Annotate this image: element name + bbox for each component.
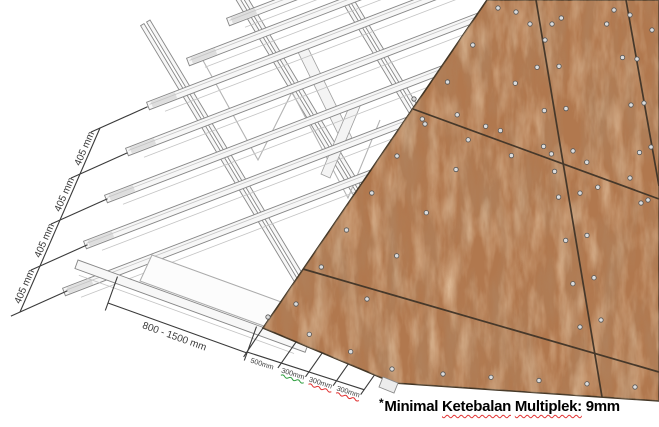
wood-grain-light [263,0,659,401]
screw-dot [578,325,582,329]
note-word-underlined: Multiplek: [515,398,582,415]
edge-distance-label: 500mm [249,356,275,372]
screw-dot [542,108,546,112]
screw-dot [642,101,646,105]
screw-dot [556,195,560,199]
screw-dot [646,198,650,202]
dimension-label: 405 mm [73,130,97,168]
screw-dot [564,106,568,110]
screw-dot [552,169,556,173]
screw-dot [571,149,575,153]
screw-dot [420,117,424,121]
screw-dot [395,154,399,158]
screw-dot [266,315,270,319]
screw-dot [633,385,637,389]
screw-dot [498,128,502,132]
screw-dot [489,375,493,379]
dimension-label: 405 mm [33,222,57,260]
screw-dot [550,22,554,26]
screw-dot [514,10,518,14]
diagram-canvas: 405 mm 405 mm 405 mm 405 mm 800 - 1500 m… [0,0,659,427]
screw-dot [637,150,641,154]
screw-dot [596,185,600,189]
screw-spacing-label: 300mm [308,375,334,391]
screw-dot [564,238,568,242]
screw-dot [424,211,428,215]
construction-detail-diagram: 405 mm 405 mm 405 mm 405 mm 800 - 1500 m… [0,0,659,427]
screw-dot [592,276,596,280]
screw-dot [635,57,639,61]
screw-dot [445,80,449,84]
screw-dot [319,265,323,269]
dimension-label: 405 mm [13,268,37,306]
note-text: Minimal [384,398,442,415]
screw-dot [496,6,500,10]
screw-dot [620,55,624,59]
screw-dot [571,282,575,286]
footnote-asterisk: * [379,396,383,410]
screw-dot [455,113,459,117]
screw-dot [559,16,563,20]
screw-dot [599,318,603,322]
screw-dot [628,176,632,180]
screw-dot [471,43,475,47]
screw-dot [585,382,589,386]
note-text: 9mm [582,398,620,415]
screw-dot [294,302,298,306]
screw-dot [649,145,653,149]
screw-dot [349,350,353,354]
screw-dot [543,38,547,42]
screw-dot [650,28,654,32]
screw-dot [390,367,394,371]
screw-dot [639,201,643,205]
screw-dot [605,22,609,26]
screw-dot [628,13,632,17]
screw-dot [528,22,532,26]
screw-dot [585,160,589,164]
note-word-underlined: Ketebalan [442,398,511,415]
screw-dot [629,103,633,107]
screw-dot [484,124,488,128]
screw-dot [395,254,399,258]
dimension-label: 405 mm [53,176,77,214]
dimension-label: 800 - 1500 mm [141,320,208,353]
screw-dot [412,97,416,101]
screw-dot [513,81,517,85]
screw-dot [509,153,513,157]
screw-dot [537,378,541,382]
screw-spacing-label: 300mm [280,366,306,382]
screw-spacing-label: 300mm [335,384,361,400]
plywood-sheathing [263,0,659,401]
screw-dot [307,332,311,336]
screw-dot [423,122,427,126]
screw-dot [466,138,470,142]
screw-dot [612,8,616,12]
screw-dot [370,191,374,195]
screw-dot [454,167,458,171]
screw-dot [549,152,553,156]
note-minimal-thickness: *Minimal Ketebalan Multiplek: 9mm [379,398,620,415]
screw-dot [557,64,561,68]
screw-dot [578,191,582,195]
screw-dot [441,372,445,376]
screw-dot [535,65,539,69]
screw-dot [344,228,348,232]
screw-dot [541,144,545,148]
screw-dot [365,297,369,301]
screw-dot [585,233,589,237]
